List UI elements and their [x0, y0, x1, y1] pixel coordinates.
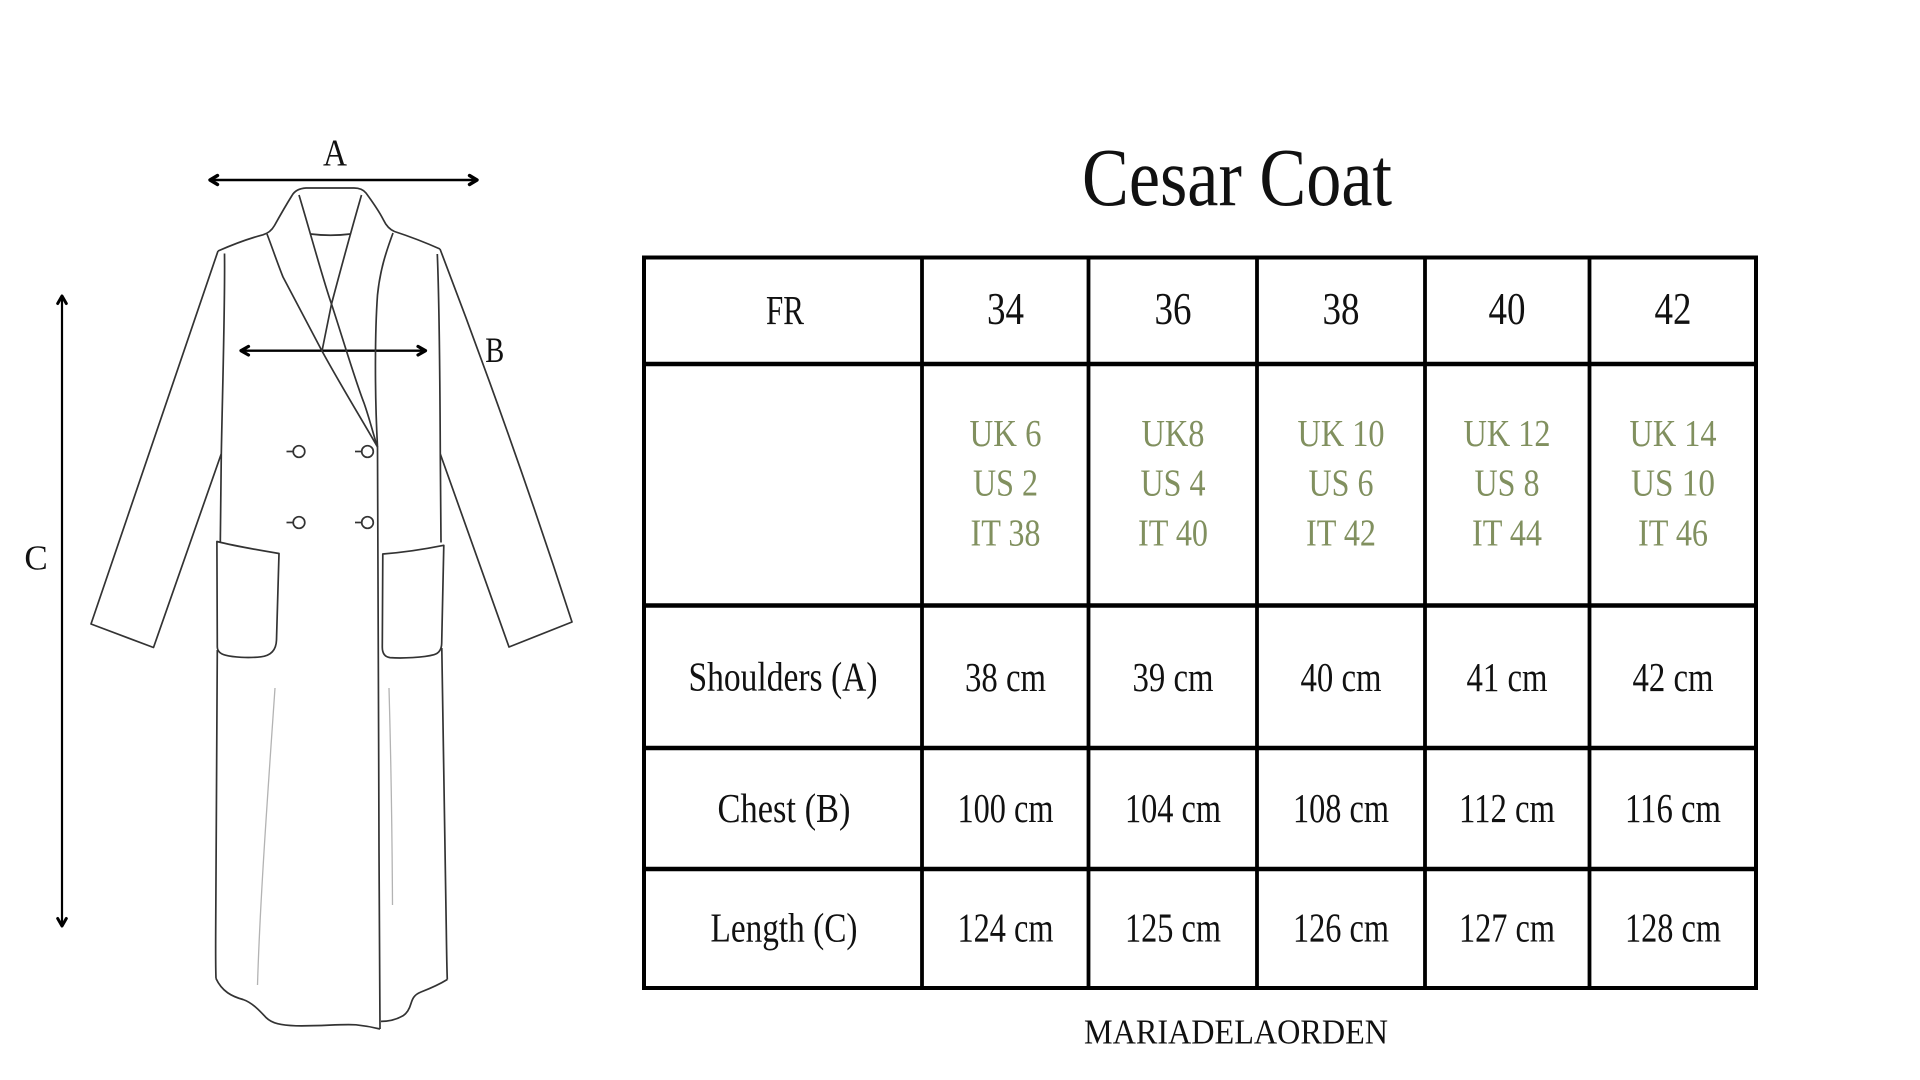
- svg-text:126 cm: 126 cm: [1293, 905, 1389, 951]
- svg-text:Cesar Coat: Cesar Coat: [1082, 131, 1392, 223]
- svg-text:C: C: [24, 539, 47, 578]
- svg-text:41 cm: 41 cm: [1467, 654, 1548, 700]
- svg-text:IT 44: IT 44: [1472, 513, 1542, 555]
- svg-text:FR: FR: [766, 287, 804, 333]
- svg-text:34: 34: [987, 284, 1024, 334]
- svg-text:UK 14: UK 14: [1630, 413, 1717, 455]
- svg-text:US 6: US 6: [1309, 463, 1374, 505]
- svg-text:IT 40: IT 40: [1138, 513, 1208, 555]
- svg-text:IT 38: IT 38: [971, 513, 1041, 555]
- svg-text:UK 6: UK 6: [970, 413, 1042, 455]
- svg-text:36: 36: [1155, 284, 1192, 334]
- svg-text:IT 42: IT 42: [1306, 513, 1376, 555]
- svg-text:39 cm: 39 cm: [1133, 654, 1214, 700]
- svg-text:Length (C): Length (C): [711, 905, 858, 951]
- svg-text:Shoulders (A): Shoulders (A): [689, 654, 878, 700]
- svg-text:124 cm: 124 cm: [958, 905, 1054, 951]
- svg-text:42: 42: [1655, 284, 1692, 334]
- svg-text:A: A: [323, 132, 347, 174]
- svg-text:UK 10: UK 10: [1298, 413, 1385, 455]
- svg-text:US 10: US 10: [1631, 463, 1715, 505]
- svg-text:125 cm: 125 cm: [1125, 905, 1221, 951]
- svg-text:US 4: US 4: [1141, 463, 1206, 505]
- svg-text:US 2: US 2: [973, 463, 1038, 505]
- svg-text:40 cm: 40 cm: [1301, 654, 1382, 700]
- svg-text:MARIADELAORDEN: MARIADELAORDEN: [1084, 1013, 1388, 1052]
- svg-text:UK 12: UK 12: [1464, 413, 1551, 455]
- svg-text:128 cm: 128 cm: [1625, 905, 1721, 951]
- svg-text:116 cm: 116 cm: [1625, 785, 1721, 831]
- svg-text:108 cm: 108 cm: [1293, 785, 1389, 831]
- svg-text:US 8: US 8: [1475, 463, 1540, 505]
- svg-text:IT 46: IT 46: [1638, 513, 1708, 555]
- svg-text:Chest (B): Chest (B): [718, 785, 851, 831]
- svg-text:UK8: UK8: [1142, 413, 1205, 455]
- svg-text:127 cm: 127 cm: [1459, 905, 1555, 951]
- svg-text:B: B: [485, 330, 504, 370]
- svg-text:40: 40: [1489, 284, 1526, 334]
- svg-text:42 cm: 42 cm: [1633, 654, 1714, 700]
- svg-text:112 cm: 112 cm: [1459, 785, 1555, 831]
- svg-text:38 cm: 38 cm: [965, 654, 1046, 700]
- svg-text:100 cm: 100 cm: [958, 785, 1054, 831]
- svg-text:104 cm: 104 cm: [1125, 785, 1221, 831]
- svg-text:38: 38: [1323, 284, 1360, 334]
